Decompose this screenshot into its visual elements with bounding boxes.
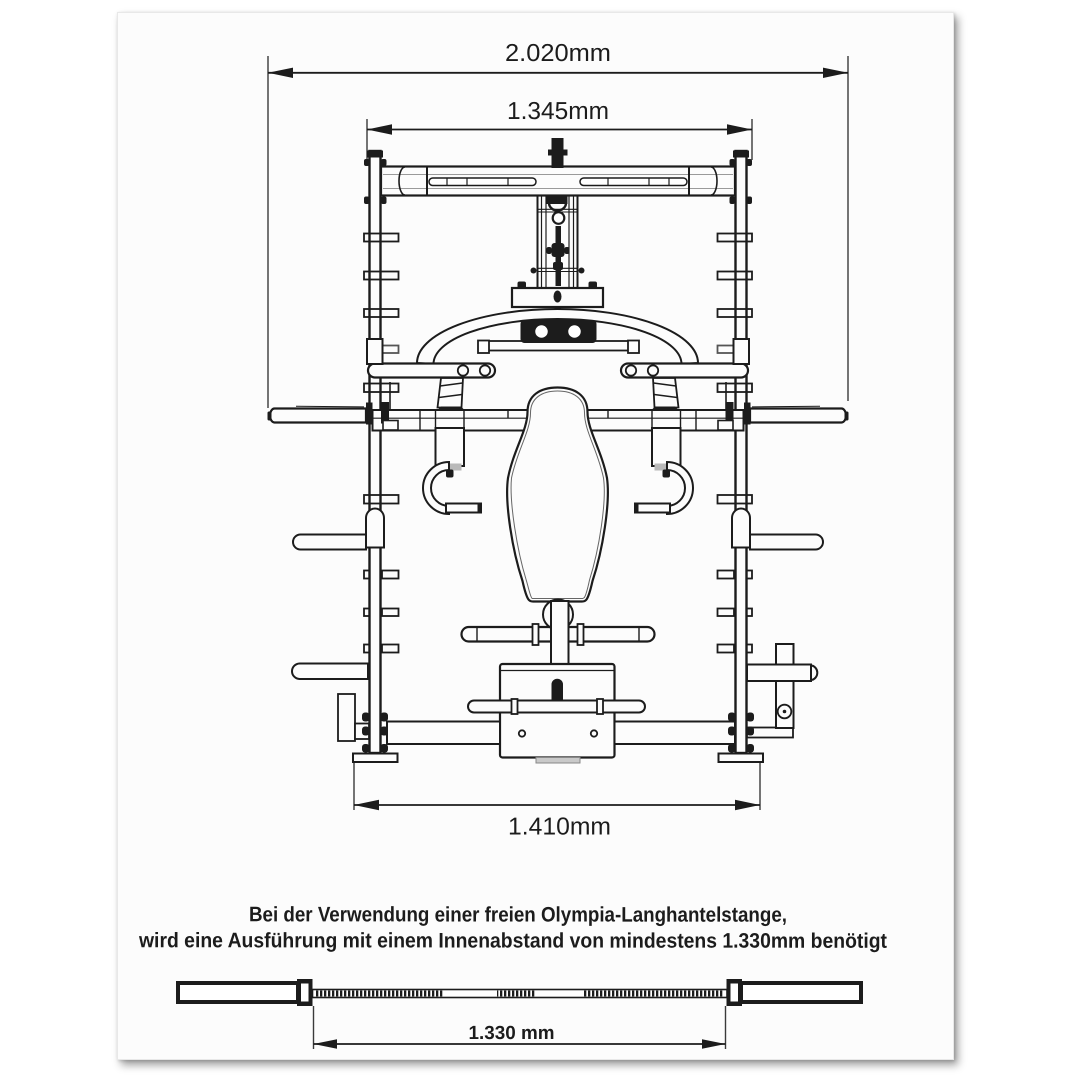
svg-text:1.330 mm: 1.330 mm bbox=[468, 1023, 554, 1044]
svg-text:1.410mm: 1.410mm bbox=[508, 813, 611, 840]
svg-text:wird eine Ausführung mit einem: wird eine Ausführung mit einem Innenabst… bbox=[138, 929, 887, 953]
svg-text:Bei der Verwendung einer freie: Bei der Verwendung einer freien Olympia-… bbox=[249, 903, 787, 926]
svg-text:1.345mm: 1.345mm bbox=[507, 98, 609, 125]
svg-text:2.020mm: 2.020mm bbox=[505, 40, 611, 67]
